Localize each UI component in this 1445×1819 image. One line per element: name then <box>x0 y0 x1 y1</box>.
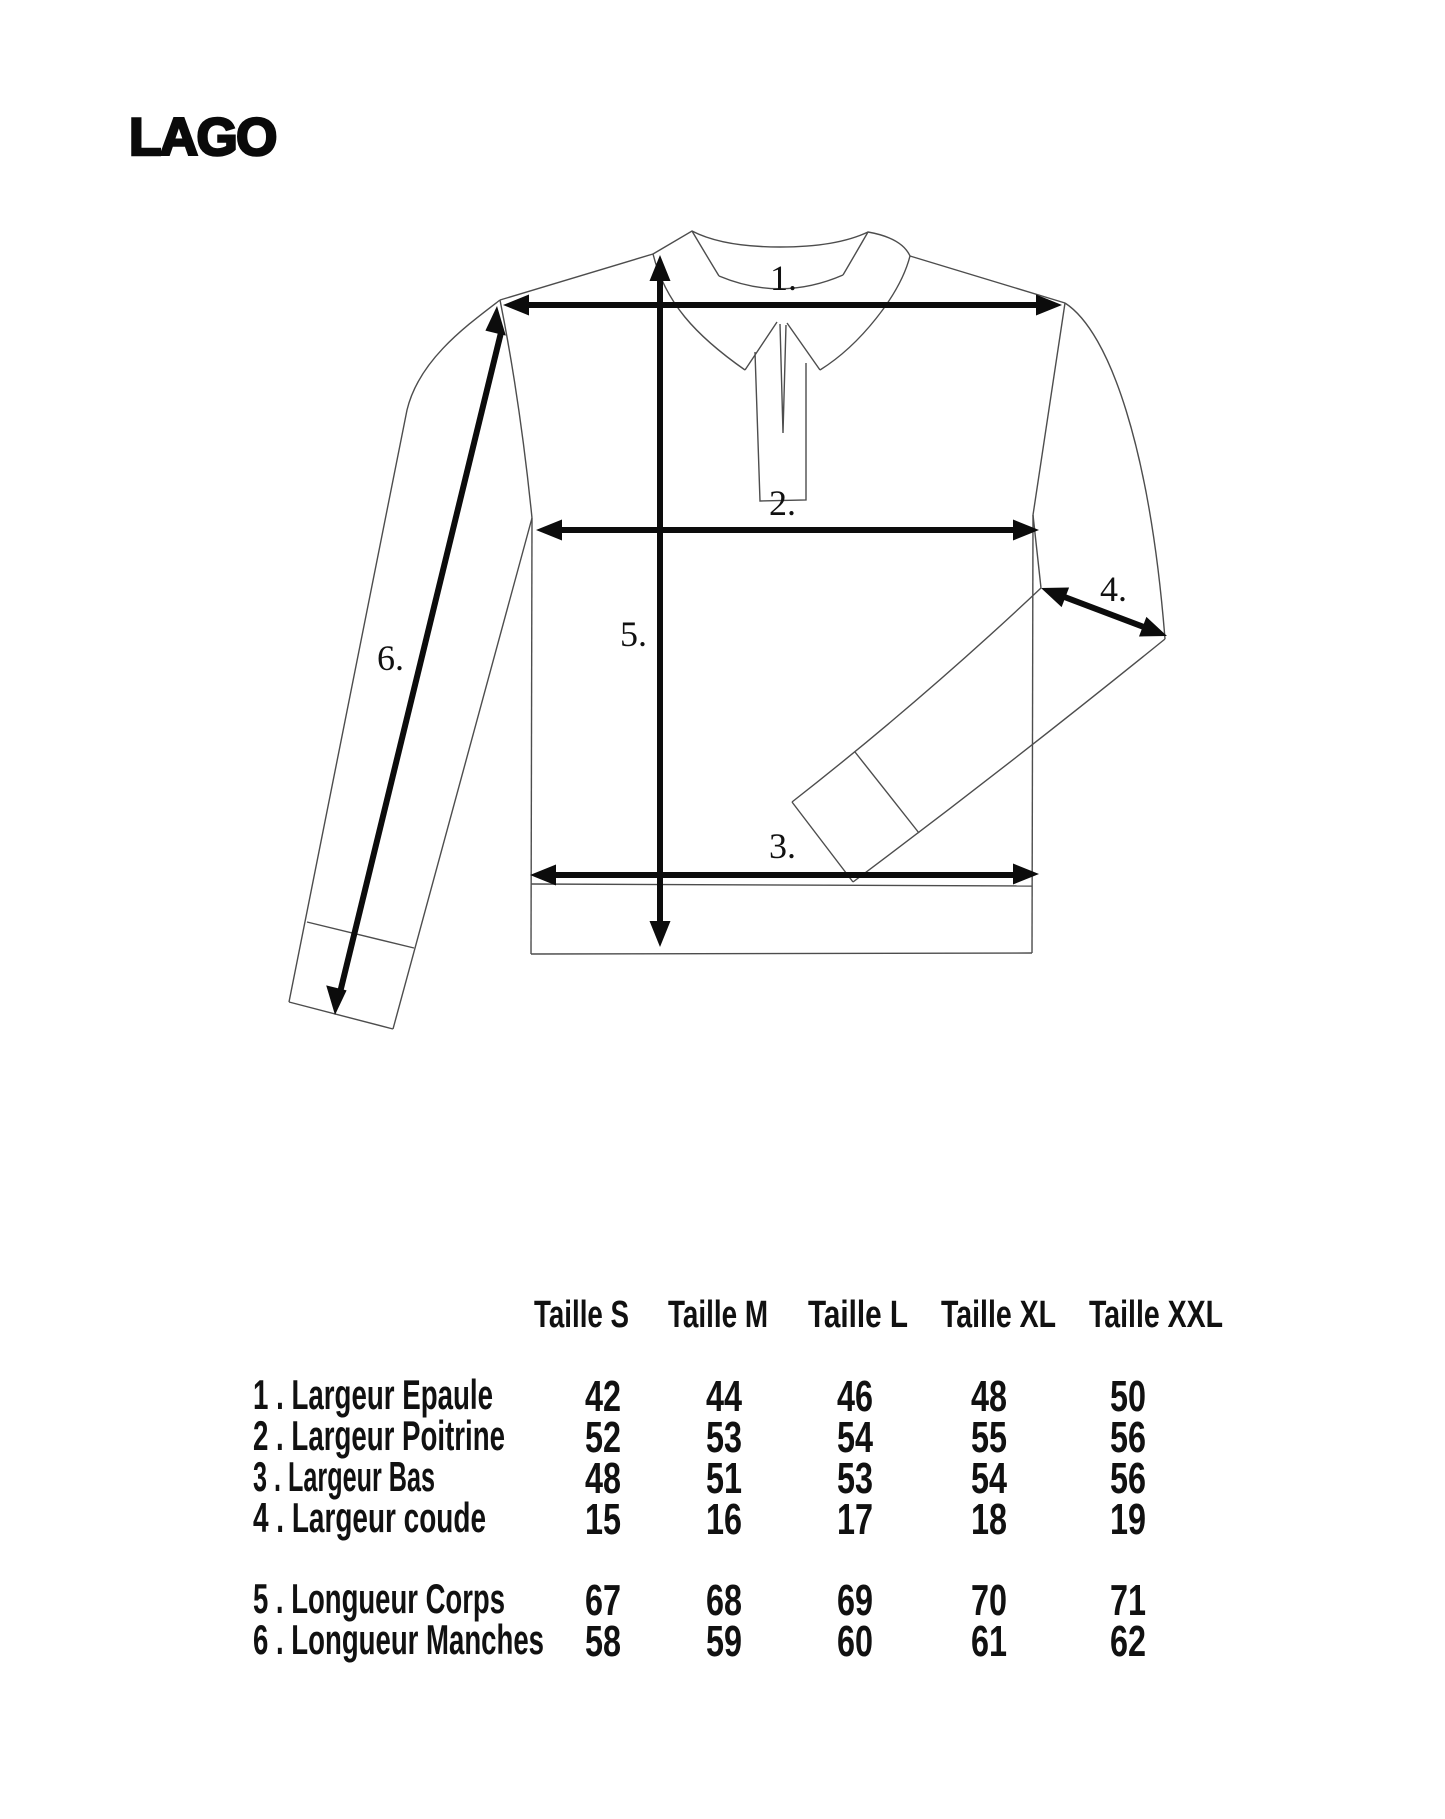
svg-text:3 . Largeur Bas: 3 . Largeur Bas <box>253 1453 435 1500</box>
svg-text:15: 15 <box>585 1495 621 1544</box>
svg-text:62: 62 <box>1110 1617 1146 1666</box>
svg-text:60: 60 <box>837 1617 873 1666</box>
svg-text:1.: 1. <box>770 258 797 298</box>
svg-text:19: 19 <box>1110 1495 1146 1544</box>
svg-text:Taille L: Taille L <box>808 1294 908 1336</box>
svg-text:6.: 6. <box>377 638 404 678</box>
svg-text:2 . Largeur Poitrine: 2 . Largeur Poitrine <box>253 1412 505 1459</box>
svg-text:LAGO: LAGO <box>129 108 276 167</box>
svg-text:17: 17 <box>837 1495 873 1544</box>
svg-text:4.: 4. <box>1100 569 1127 609</box>
svg-text:3.: 3. <box>769 826 796 866</box>
svg-text:5 . Longueur Corps: 5 . Longueur Corps <box>253 1575 505 1622</box>
svg-text:58: 58 <box>585 1617 621 1666</box>
svg-text:2.: 2. <box>769 483 796 523</box>
svg-text:Taille XL: Taille XL <box>941 1294 1056 1336</box>
svg-text:59: 59 <box>706 1617 742 1666</box>
svg-text:18: 18 <box>971 1495 1007 1544</box>
svg-text:Taille XXL: Taille XXL <box>1089 1294 1223 1336</box>
svg-text:61: 61 <box>971 1617 1007 1666</box>
svg-text:6 . Longueur Manches: 6 . Longueur Manches <box>253 1616 544 1663</box>
svg-text:5.: 5. <box>620 614 647 654</box>
svg-text:Taille S: Taille S <box>534 1294 629 1336</box>
svg-text:1 . Largeur Epaule: 1 . Largeur Epaule <box>253 1371 493 1418</box>
svg-text:4 . Largeur coude: 4 . Largeur coude <box>253 1494 486 1541</box>
svg-text:16: 16 <box>706 1495 742 1544</box>
svg-text:Taille M: Taille M <box>668 1294 768 1336</box>
